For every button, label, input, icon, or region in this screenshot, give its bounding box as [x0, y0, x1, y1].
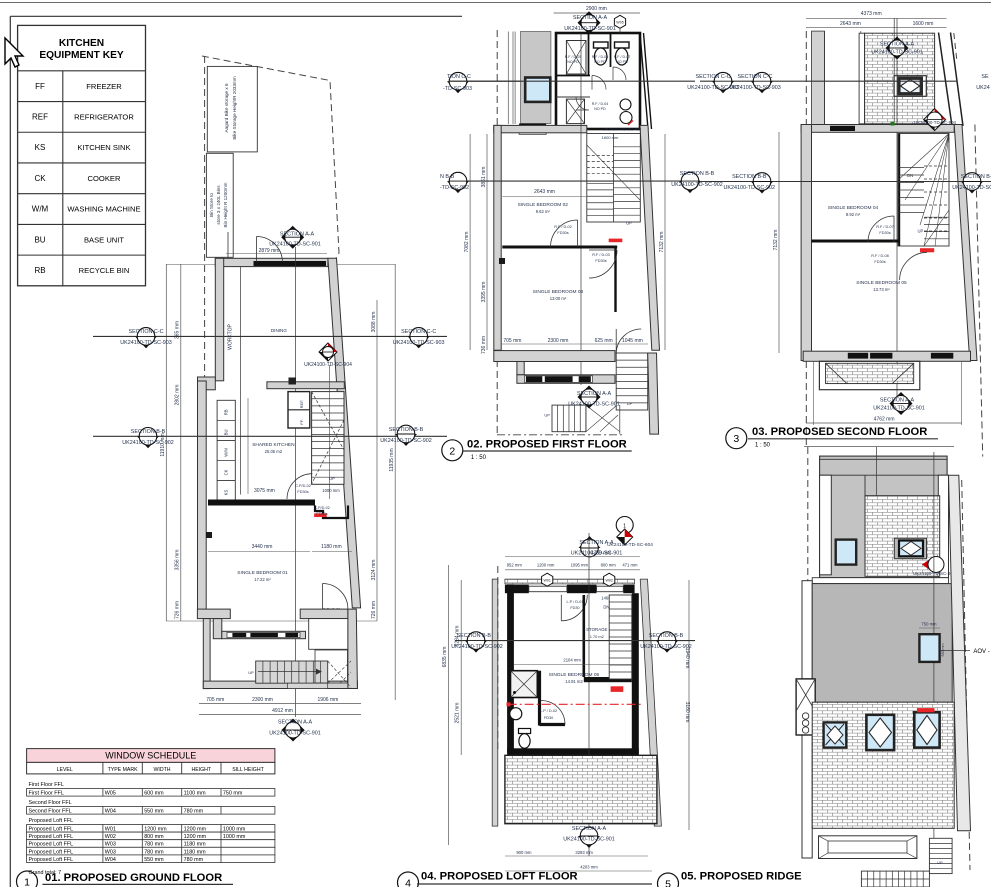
- svg-text:FREEZER: FREEZER: [86, 82, 122, 91]
- svg-text:3861 mm: 3861 mm: [481, 167, 487, 188]
- svg-text:14.91 m2: 14.91 m2: [565, 679, 583, 684]
- svg-text:Proposed Loft FFL: Proposed Loft FFL: [29, 849, 74, 855]
- svg-text:3440 mm: 3440 mm: [252, 544, 273, 550]
- svg-text:3: 3: [733, 433, 739, 445]
- svg-text:800 mm: 800 mm: [601, 563, 617, 568]
- svg-text:SECTION B-B: SECTION B-B: [680, 171, 715, 177]
- svg-text:Second Floor FFL: Second Floor FFL: [29, 800, 72, 806]
- svg-text:1.70 m2: 1.70 m2: [590, 634, 604, 639]
- svg-text:SECTION B-B: SECTION B-B: [389, 427, 424, 433]
- svg-text:05. PROPOSED RIDGE: 05. PROPOSED RIDGE: [681, 871, 802, 883]
- svg-text:NO PD: NO PD: [616, 60, 628, 64]
- svg-text:2104 mm: 2104 mm: [563, 658, 581, 663]
- svg-text:SECTION B-B: SECTION B-B: [649, 633, 684, 639]
- svg-text:BU: BU: [34, 235, 45, 244]
- svg-text:1200 mm: 1200 mm: [184, 827, 207, 833]
- svg-text:SECTION B-B: SECTION B-B: [131, 429, 166, 435]
- svg-text:FD30s: FD30s: [297, 490, 308, 494]
- svg-text:W04: W04: [105, 809, 116, 815]
- svg-text:UK24100-TD-SC-404: UK24100-TD-SC-404: [913, 571, 956, 576]
- svg-text:UK24100-TD-SC-904: UK24100-TD-SC-904: [304, 362, 352, 368]
- svg-text:17.22 m²: 17.22 m²: [254, 577, 271, 582]
- svg-text:W04: W04: [105, 857, 116, 863]
- svg-text:625 mm: 625 mm: [595, 338, 613, 344]
- svg-text:Proposed Loft FFL: Proposed Loft FFL: [29, 834, 74, 840]
- svg-text:NO PD: NO PD: [567, 60, 579, 64]
- svg-text:3395 mm: 3395 mm: [481, 282, 487, 303]
- svg-text:780 mm: 780 mm: [184, 809, 204, 815]
- svg-text:2: 2: [449, 445, 455, 457]
- svg-text:750 mm: 750 mm: [921, 622, 937, 627]
- svg-text:SINGLE BEDROOM 04: SINGLE BEDROOM 04: [828, 205, 879, 211]
- svg-text:UP: UP: [627, 401, 633, 406]
- svg-text:1200 mm: 1200 mm: [144, 827, 167, 833]
- svg-text:1 : 50: 1 : 50: [755, 443, 771, 449]
- svg-text:R.F / D-03: R.F / D-03: [592, 253, 610, 257]
- svg-text:6835 mm: 6835 mm: [442, 647, 448, 668]
- svg-text:01. PROPOSED GROUND FLOOR: 01. PROPOSED GROUND FLOOR: [45, 872, 222, 884]
- svg-text:1095 mm: 1095 mm: [571, 563, 589, 568]
- svg-text:First Floor FFL: First Floor FFL: [29, 782, 64, 788]
- svg-text:KS: KS: [35, 143, 46, 152]
- svg-text:2521 mm: 2521 mm: [455, 703, 461, 724]
- svg-text:800 mm: 800 mm: [144, 834, 164, 840]
- svg-text:UK24100-TD-SC-903: UK24100-TD-SC-903: [120, 340, 172, 346]
- svg-text:UK24100-TD-SC-604: UK24100-TD-SC-604: [607, 542, 653, 548]
- svg-text:SHARED KITCHEN: SHARED KITCHEN: [252, 442, 295, 448]
- svg-text:UK24100-TD-SC-403: UK24100-TD-SC-403: [603, 127, 642, 132]
- svg-text:Proposed Loft FFL: Proposed Loft FFL: [29, 827, 74, 833]
- svg-text:4373 mm: 4373 mm: [861, 11, 882, 17]
- svg-text:1940 mm: 1940 mm: [684, 648, 690, 669]
- svg-text:FF.: FF.: [299, 419, 304, 425]
- svg-text:1 : 50: 1 : 50: [471, 455, 487, 461]
- svg-text:1: 1: [24, 877, 30, 887]
- svg-text:SECTION B-B: SECTION B-B: [457, 633, 492, 639]
- svg-text:LEVEL: LEVEL: [57, 767, 73, 773]
- svg-text:W05: W05: [616, 20, 623, 24]
- svg-text:BASE UNIT: BASE UNIT: [84, 235, 124, 244]
- svg-text:1180 mm: 1180 mm: [184, 849, 207, 855]
- svg-text:SINGLE BEDROOM 02: SINGLE BEDROOM 02: [518, 202, 569, 208]
- svg-text:UK24100-TD-SC-903: UK24100-TD-SC-903: [393, 340, 445, 346]
- svg-text:W/M: W/M: [224, 448, 229, 457]
- svg-text:Bin Store to: Bin Store to: [209, 193, 214, 217]
- svg-text:FD30s: FD30s: [595, 259, 606, 263]
- svg-text:7132 mm: 7132 mm: [659, 232, 665, 253]
- svg-text:SECTION B-B: SECTION B-B: [961, 174, 991, 180]
- svg-text:R.F / D-07: R.F / D-07: [614, 55, 631, 59]
- svg-text:RB: RB: [224, 409, 229, 415]
- svg-text:UP: UP: [329, 476, 335, 481]
- svg-text:FD30s: FD30s: [557, 231, 568, 235]
- svg-text:AOV -: AOV -: [973, 649, 989, 655]
- svg-text:705 mm: 705 mm: [206, 697, 224, 703]
- svg-text:UP: UP: [937, 861, 943, 865]
- svg-text:13.00 m²: 13.00 m²: [550, 296, 567, 301]
- svg-text:1600 mm: 1600 mm: [602, 135, 619, 140]
- svg-text:SE: SE: [981, 74, 989, 80]
- svg-text:FD30: FD30: [544, 716, 553, 720]
- svg-text:WIDTH: WIDTH: [154, 767, 171, 773]
- svg-text:4359 mm: 4359 mm: [591, 551, 612, 557]
- svg-text:900 mm: 900 mm: [516, 850, 532, 855]
- svg-text:UP: UP: [248, 670, 254, 675]
- svg-text:UK24100-TD-SC-901: UK24100-TD-SC-901: [873, 406, 925, 412]
- svg-text:-TD-SC-903: -TD-SC-903: [443, 86, 472, 92]
- svg-text:W01: W01: [105, 827, 116, 833]
- svg-text:SECTION C-C: SECTION C-C: [401, 329, 436, 335]
- svg-text:R.F / D-04: R.F / D-04: [592, 102, 609, 106]
- svg-text:COOKER: COOKER: [88, 174, 121, 183]
- svg-text:UK24100-TD-SC-902: UK24100-TD-SC-902: [451, 644, 503, 650]
- svg-text:WINDOW SCHEDULE: WINDOW SCHEDULE: [105, 750, 196, 760]
- svg-text:RB: RB: [34, 266, 45, 275]
- svg-text:2900 mm: 2900 mm: [586, 6, 607, 12]
- svg-text:UK24100-TD-SC-901: UK24100-TD-SC-901: [269, 731, 321, 737]
- svg-text:UP: UP: [626, 221, 632, 226]
- svg-text:530 mm: 530 mm: [941, 644, 945, 657]
- svg-text:REFRIGERATOR: REFRIGERATOR: [74, 113, 134, 122]
- svg-text:SINGLE BEDROOM 03: SINGLE BEDROOM 03: [533, 289, 584, 295]
- svg-text:HEIGHT: HEIGHT: [191, 767, 211, 773]
- svg-text:4762 mm: 4762 mm: [874, 417, 895, 423]
- svg-text:KITCHEN: KITCHEN: [59, 38, 104, 49]
- svg-text:04. PROPOSED LOFT FLOOR: 04. PROPOSED LOFT FLOOR: [421, 871, 578, 883]
- svg-text:Second Floor FFL: Second Floor FFL: [29, 809, 72, 815]
- svg-text:UK24100-TD-SC-903: UK24100-TD-SC-903: [729, 85, 781, 91]
- svg-text:W02: W02: [105, 834, 116, 840]
- svg-text:UP: UP: [544, 413, 550, 418]
- svg-text:1180 mm: 1180 mm: [184, 842, 207, 848]
- svg-text:4203 mm: 4203 mm: [580, 865, 598, 870]
- svg-text:FD30s: FD30s: [879, 231, 890, 235]
- svg-text:780 mm: 780 mm: [144, 849, 164, 855]
- svg-text:SECTION A-A: SECTION A-A: [573, 15, 608, 21]
- svg-text:W03: W03: [105, 849, 116, 855]
- svg-text:2802 mm: 2802 mm: [175, 385, 181, 406]
- svg-text:UK24: UK24: [976, 85, 990, 91]
- svg-text:C.P/D-02: C.P/D-02: [295, 484, 311, 488]
- svg-text:store 3 x 240L Bins: store 3 x 240L Bins: [216, 185, 221, 225]
- svg-text:13.73 m²: 13.73 m²: [873, 287, 890, 292]
- svg-text:2643 mm: 2643 mm: [534, 189, 555, 195]
- svg-text:SECTION A-A: SECTION A-A: [880, 42, 915, 48]
- svg-text:DN: DN: [907, 173, 913, 178]
- svg-text:3293 mm: 3293 mm: [575, 850, 593, 855]
- svg-text:550 mm: 550 mm: [144, 809, 164, 815]
- svg-text:SECTION A-A: SECTION A-A: [572, 826, 607, 832]
- svg-text:First Floor FFL: First Floor FFL: [29, 791, 64, 797]
- svg-text:4: 4: [405, 878, 411, 887]
- svg-text:780 mm: 780 mm: [144, 842, 164, 848]
- svg-text:SECTION C-C: SECTION C-C: [737, 74, 772, 80]
- svg-text:NO PD: NO PD: [594, 60, 606, 64]
- svg-text:DN: DN: [603, 605, 609, 610]
- svg-text:2643 mm: 2643 mm: [840, 21, 861, 27]
- svg-text:705 mm: 705 mm: [503, 338, 521, 344]
- svg-text:471 mm: 471 mm: [622, 563, 638, 568]
- svg-text:UK24100-TD-SC-902: UK24100-TD-SC-902: [640, 644, 692, 650]
- svg-text:UK24100-TD-SC-902: UK24100-TD-SC-902: [724, 185, 776, 191]
- svg-text:03. PROPOSED SECOND FLOOR: 03. PROPOSED SECOND FLOOR: [752, 426, 927, 438]
- svg-text:Bike Storage HeightR 2033mm: Bike Storage HeightR 2033mm: [232, 76, 237, 139]
- svg-text:600 mm: 600 mm: [144, 791, 164, 797]
- svg-text:FD30: FD30: [570, 606, 579, 610]
- svg-text:UK24100-TD-SC-901: UK24100-TD-SC-901: [563, 837, 615, 843]
- svg-text:7082 mm: 7082 mm: [464, 232, 470, 253]
- svg-text:R.F / D-07: R.F / D-07: [876, 225, 894, 229]
- svg-text:TION C-C: TION C-C: [447, 74, 471, 80]
- svg-text:SINGLE BEDROOM 05: SINGLE BEDROOM 05: [549, 672, 600, 678]
- svg-text:R.F / D-06: R.F / D-06: [592, 55, 609, 59]
- svg-text:Proposed Loft FFL: Proposed Loft FFL: [29, 818, 74, 824]
- svg-text:11935 mm: 11935 mm: [389, 448, 395, 471]
- svg-text:Proposed Loft FFL: Proposed Loft FFL: [29, 857, 74, 863]
- svg-text:WASHING MACHINE: WASHING MACHINE: [67, 205, 140, 214]
- svg-text:FD30s: FD30s: [316, 512, 327, 516]
- svg-text:2300 mm: 2300 mm: [252, 697, 273, 703]
- svg-text:SECTION A-A: SECTION A-A: [577, 391, 612, 397]
- svg-text:1000 mm: 1000 mm: [223, 834, 246, 840]
- svg-text:SILL HEIGHT: SILL HEIGHT: [232, 767, 264, 773]
- svg-text:UP: UP: [917, 229, 923, 234]
- svg-text:STORAGE: STORAGE: [586, 627, 607, 632]
- svg-text:W01: W01: [544, 578, 551, 582]
- svg-text:02. PROPOSED FIRST FLOOR: 02. PROPOSED FIRST FLOOR: [467, 438, 627, 450]
- svg-text:REF.: REF.: [299, 400, 304, 409]
- svg-text:1906 mm: 1906 mm: [317, 697, 338, 703]
- svg-text:1200 mm: 1200 mm: [184, 834, 207, 840]
- svg-text:750 mm: 750 mm: [223, 791, 243, 797]
- svg-text:3180 mm: 3180 mm: [684, 702, 690, 723]
- svg-text:N B-B: N B-B: [440, 174, 455, 180]
- svg-text:25.05 m2: 25.05 m2: [265, 449, 283, 454]
- svg-text:UK24100-TD-SC-901: UK24100-TD-SC-901: [564, 26, 616, 32]
- svg-text:SECTION A-A: SECTION A-A: [880, 398, 915, 404]
- svg-text:3088 mm: 3088 mm: [371, 312, 377, 333]
- svg-text:TYPE MARK: TYPE MARK: [108, 767, 139, 773]
- svg-text:9.62 m²: 9.62 m²: [536, 209, 551, 214]
- svg-text:952 mm: 952 mm: [507, 563, 523, 568]
- svg-text:C.P/D-02: C.P/D-02: [314, 506, 330, 510]
- svg-text:1000 mm: 1000 mm: [322, 488, 340, 493]
- svg-text:726 mm: 726 mm: [175, 601, 181, 619]
- svg-text:Bin Height R 1200mm: Bin Height R 1200mm: [223, 182, 228, 227]
- svg-text:CK: CK: [34, 174, 46, 183]
- svg-text:UK24100-TD-SC-902: UK24100-TD-SC-902: [671, 182, 723, 188]
- svg-text:EQUIPMENT KEY: EQUIPMENT KEY: [39, 50, 124, 61]
- svg-text:1180 mm: 1180 mm: [321, 544, 341, 550]
- svg-text:UK24100-TD-SC-902: UK24100-TD-SC-902: [952, 185, 991, 191]
- svg-text:W05: W05: [105, 791, 116, 797]
- svg-text:UK24100-TD-SC-901: UK24100-TD-SC-901: [871, 50, 923, 56]
- svg-text:DINING: DINING: [271, 328, 288, 333]
- svg-text:FF: FF: [35, 82, 45, 91]
- svg-text:1200 mm: 1200 mm: [537, 563, 555, 568]
- svg-text:SECTION B-B: SECTION B-B: [732, 174, 767, 180]
- svg-text:UK24100-TD-SC-904: UK24100-TD-SC-904: [914, 120, 957, 125]
- svg-text:KITCHEN SINK: KITCHEN SINK: [77, 143, 130, 152]
- svg-text:BU: BU: [224, 429, 229, 435]
- svg-text:3124 mm: 3124 mm: [371, 560, 377, 581]
- svg-text:1045 mm: 1045 mm: [622, 338, 643, 344]
- svg-text:1000 mm: 1000 mm: [223, 827, 246, 833]
- svg-text:4912 mm: 4912 mm: [272, 708, 293, 714]
- svg-text:L.P / D-02: L.P / D-02: [540, 709, 557, 713]
- svg-text:736 mm: 736 mm: [481, 336, 487, 354]
- svg-text:L.P / D-01: L.P / D-01: [566, 600, 583, 604]
- svg-text:FD30s: FD30s: [874, 260, 885, 264]
- svg-text:SECTION C-C: SECTION C-C: [128, 329, 163, 335]
- svg-text:REF: REF: [32, 113, 48, 122]
- svg-text:KS: KS: [224, 490, 229, 496]
- svg-text:SECTION A-A: SECTION A-A: [280, 232, 315, 238]
- svg-text:SECTION A-A: SECTION A-A: [278, 720, 313, 726]
- svg-text:-TD-SC-902: -TD-SC-902: [440, 185, 469, 191]
- svg-text:780 mm: 780 mm: [184, 857, 204, 863]
- svg-text:W02: W02: [606, 578, 613, 582]
- svg-text:RECYCLE BIN: RECYCLE BIN: [79, 266, 130, 275]
- svg-text:R.F / D-05: R.F / D-05: [565, 55, 582, 59]
- svg-text:726 mm: 726 mm: [371, 601, 377, 619]
- svg-text:Aagard Bike storage x 6: Aagard Bike storage x 6: [224, 83, 229, 132]
- svg-text:SECTION C-C: SECTION C-C: [695, 74, 730, 80]
- svg-text:550 mm: 550 mm: [144, 857, 164, 863]
- svg-text:8.92 m²: 8.92 m²: [846, 212, 861, 217]
- svg-text:7132 mm: 7132 mm: [773, 230, 779, 251]
- svg-text:UK24100-TD-SC-901: UK24100-TD-SC-901: [568, 402, 620, 408]
- svg-text:W/M: W/M: [32, 205, 49, 214]
- svg-text:R.F / D-08: R.F / D-08: [871, 254, 889, 258]
- svg-text:3356 mm: 3356 mm: [175, 550, 181, 571]
- svg-text:1100 mm: 1100 mm: [184, 791, 207, 797]
- svg-text:CK: CK: [224, 469, 229, 475]
- svg-text:R.F / D-02: R.F / D-02: [554, 225, 572, 229]
- svg-text:UK24100-TD-SC-902: UK24100-TD-SC-902: [122, 440, 174, 446]
- svg-text:2300 mm: 2300 mm: [548, 338, 569, 344]
- svg-text:SECTION A-A: SECTION A-A: [579, 540, 614, 546]
- svg-text:UK24100-TD-SC-902: UK24100-TD-SC-902: [380, 438, 432, 444]
- svg-text:W03: W03: [105, 842, 116, 848]
- svg-text:3075 mm: 3075 mm: [254, 488, 275, 494]
- svg-text:2879 mm: 2879 mm: [259, 248, 280, 254]
- svg-text:SINGLE BEDROOM 01: SINGLE BEDROOM 01: [237, 570, 288, 576]
- svg-text:UK24100-TD-SC-901: UK24100-TD-SC-901: [269, 242, 321, 248]
- svg-text:NO PD: NO PD: [594, 107, 606, 111]
- svg-text:Proposed Loft FFL: Proposed Loft FFL: [29, 842, 74, 848]
- svg-text:SINGLE BEDROOM 05: SINGLE BEDROOM 05: [856, 280, 907, 286]
- svg-text:5: 5: [665, 879, 671, 887]
- svg-text:1600 mm: 1600 mm: [913, 21, 934, 27]
